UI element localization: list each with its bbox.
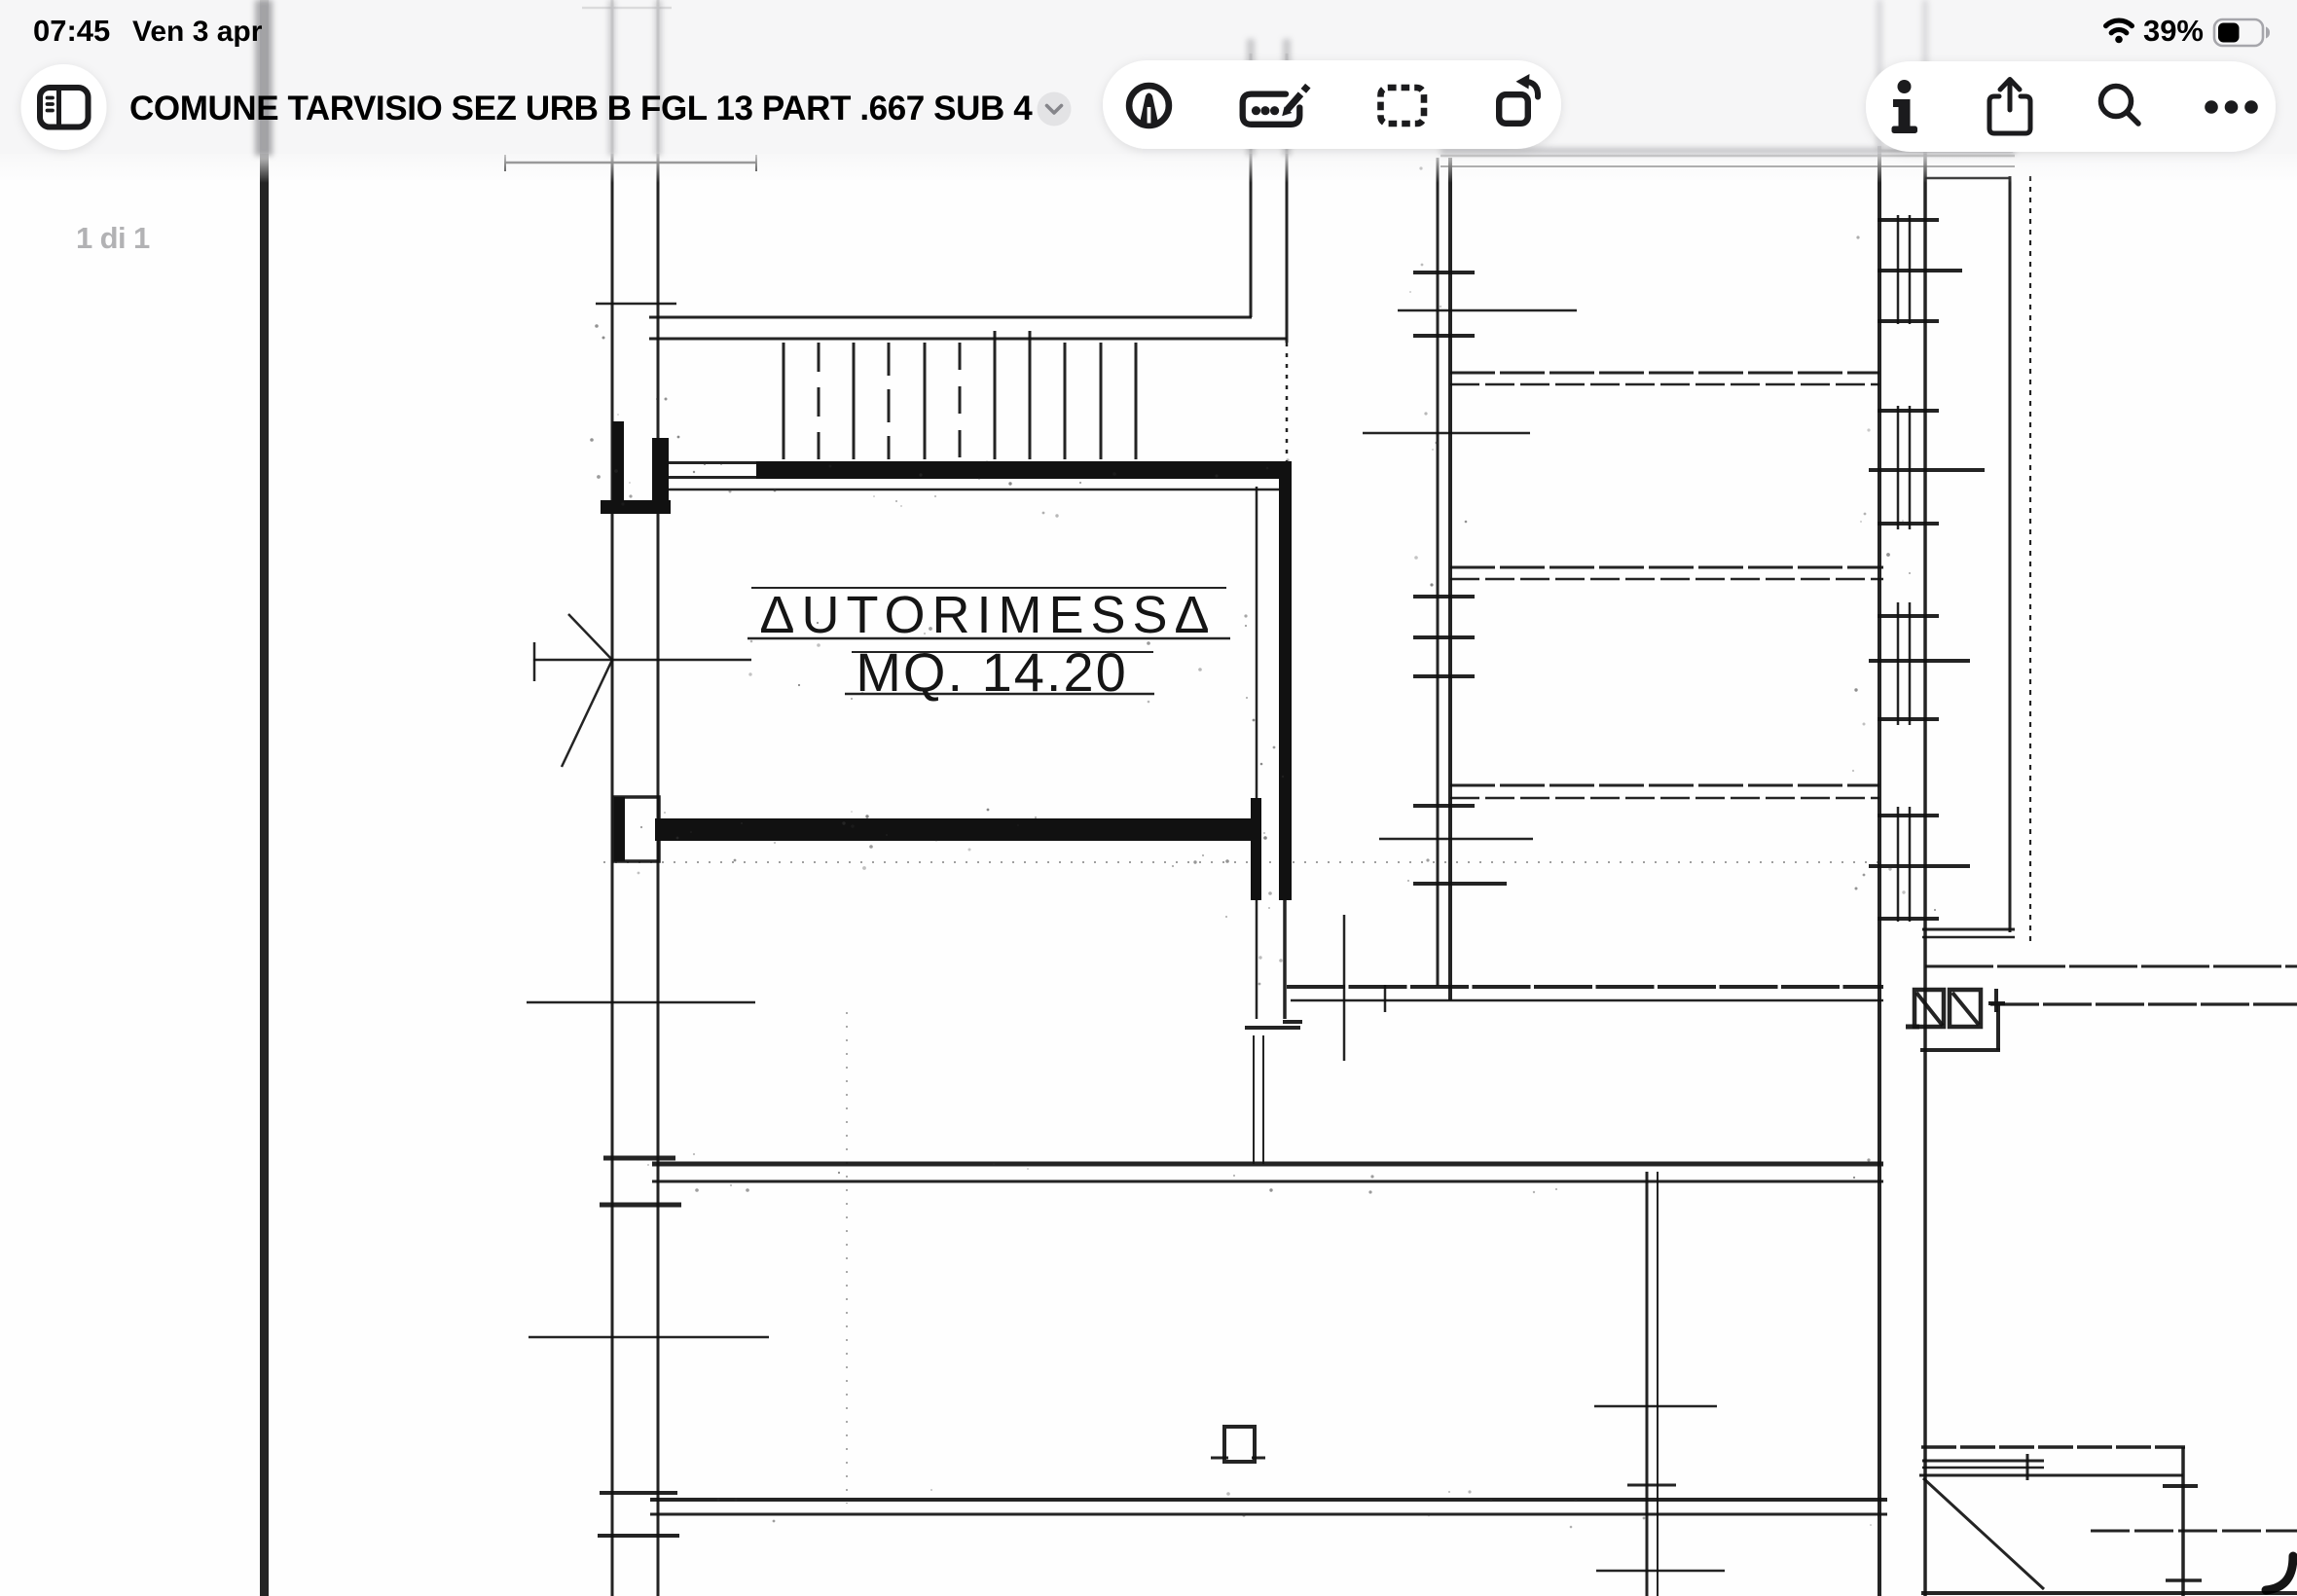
svg-text:MQ. 14.20: MQ. 14.20 xyxy=(856,641,1127,703)
svg-text:Ven 3 apr: Ven 3 apr xyxy=(132,16,263,48)
svg-text:1 di 1: 1 di 1 xyxy=(76,221,150,255)
svg-text:ΔUTORIMESSΔ: ΔUTORIMESSΔ xyxy=(759,586,1216,644)
svg-text:07:45: 07:45 xyxy=(33,14,110,48)
svg-text:39%: 39% xyxy=(2143,14,2204,48)
svg-text:COMUNE TARVISIO SEZ URB B FGL: COMUNE TARVISIO SEZ URB B FGL 13 PART .6… xyxy=(129,90,1033,127)
